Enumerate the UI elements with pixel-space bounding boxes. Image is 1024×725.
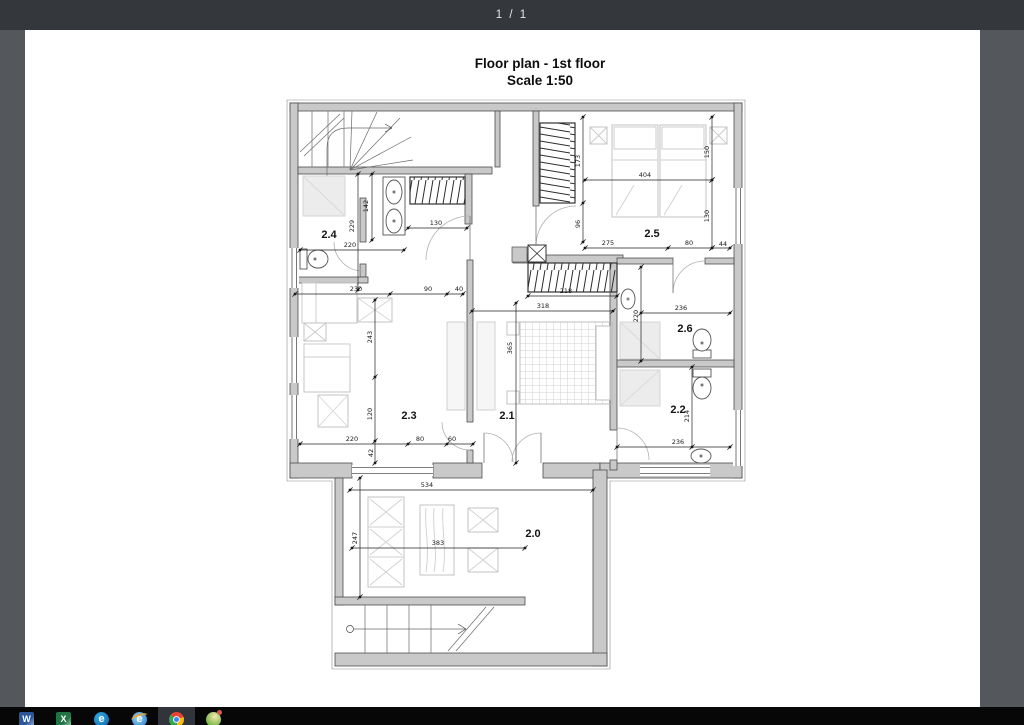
- excel-icon[interactable]: X: [56, 712, 71, 725]
- document-page: [25, 30, 980, 707]
- title-line-1: Floor plan - 1st floor: [290, 55, 790, 72]
- word-icon[interactable]: W: [19, 712, 34, 725]
- globe-app-icon[interactable]: [206, 712, 221, 725]
- screen: { "toolbar": { "page_indicator": "1 / 1"…: [0, 0, 1024, 725]
- title-line-2: Scale 1:50: [290, 72, 790, 89]
- chrome-icon[interactable]: [169, 712, 184, 725]
- internet-explorer-icon[interactable]: e: [132, 712, 147, 725]
- document-title: Floor plan - 1st floor Scale 1:50: [290, 55, 790, 89]
- edge-icon[interactable]: e: [94, 712, 109, 725]
- page-indicator: 1 / 1: [496, 9, 528, 21]
- pdf-toolbar[interactable]: 1 / 1: [0, 0, 1024, 30]
- taskbar: W X e e: [0, 707, 1024, 725]
